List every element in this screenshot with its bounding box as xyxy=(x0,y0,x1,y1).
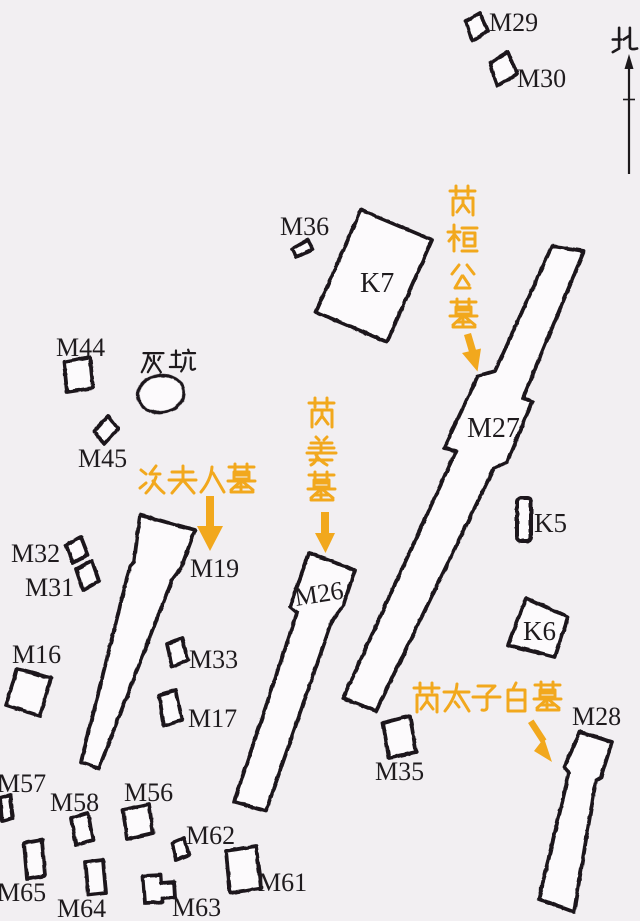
svg-text:M63: M63 xyxy=(172,893,221,921)
svg-text:M16: M16 xyxy=(12,640,61,669)
svg-text:M45: M45 xyxy=(78,444,127,473)
svg-text:K6: K6 xyxy=(523,616,556,646)
svg-text:M19: M19 xyxy=(190,554,239,583)
svg-text:M28: M28 xyxy=(572,702,621,731)
svg-text:M61: M61 xyxy=(258,868,307,897)
svg-text:M32: M32 xyxy=(11,539,60,568)
svg-text:M31: M31 xyxy=(25,573,74,602)
svg-text:M36: M36 xyxy=(280,212,329,241)
svg-text:M17: M17 xyxy=(188,704,237,733)
svg-text:M58: M58 xyxy=(50,788,99,817)
svg-text:M30: M30 xyxy=(517,64,566,93)
svg-text:M33: M33 xyxy=(189,645,238,674)
svg-text:M65: M65 xyxy=(0,878,46,907)
svg-text:K7: K7 xyxy=(360,268,394,299)
svg-text:M64: M64 xyxy=(57,894,106,921)
svg-text:M29: M29 xyxy=(489,8,538,37)
svg-text:M27: M27 xyxy=(467,413,520,444)
svg-text:M35: M35 xyxy=(375,757,424,786)
svg-text:M62: M62 xyxy=(186,821,235,850)
svg-text:K5: K5 xyxy=(534,508,567,538)
svg-text:M57: M57 xyxy=(0,769,46,798)
